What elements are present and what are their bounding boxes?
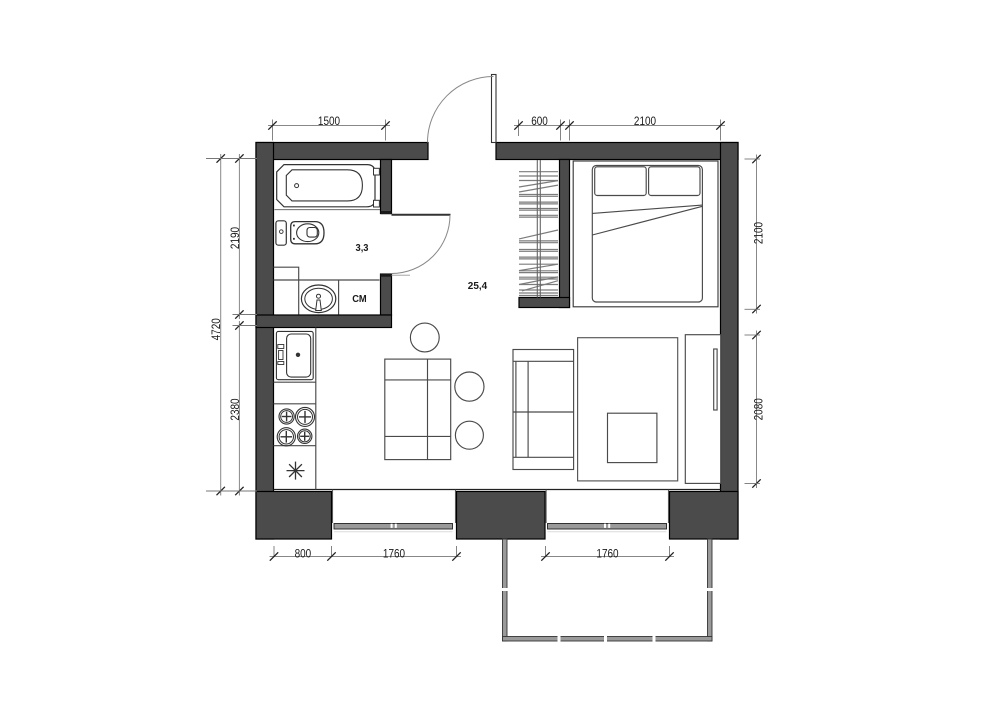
svg-text:1760: 1760	[596, 548, 618, 560]
svg-text:2080: 2080	[754, 398, 766, 420]
svg-text:СМ: СМ	[352, 293, 367, 305]
svg-text:2100: 2100	[634, 116, 656, 128]
svg-text:2380: 2380	[230, 398, 242, 420]
svg-text:1500: 1500	[318, 116, 340, 128]
svg-text:4720: 4720	[211, 318, 223, 340]
svg-text:600: 600	[531, 116, 548, 128]
svg-text:25,4: 25,4	[468, 280, 488, 292]
svg-text:1760: 1760	[383, 548, 405, 560]
svg-text:2190: 2190	[230, 227, 242, 249]
svg-text:800: 800	[295, 548, 312, 560]
svg-text:2100: 2100	[754, 222, 766, 244]
svg-text:3,3: 3,3	[356, 242, 369, 254]
